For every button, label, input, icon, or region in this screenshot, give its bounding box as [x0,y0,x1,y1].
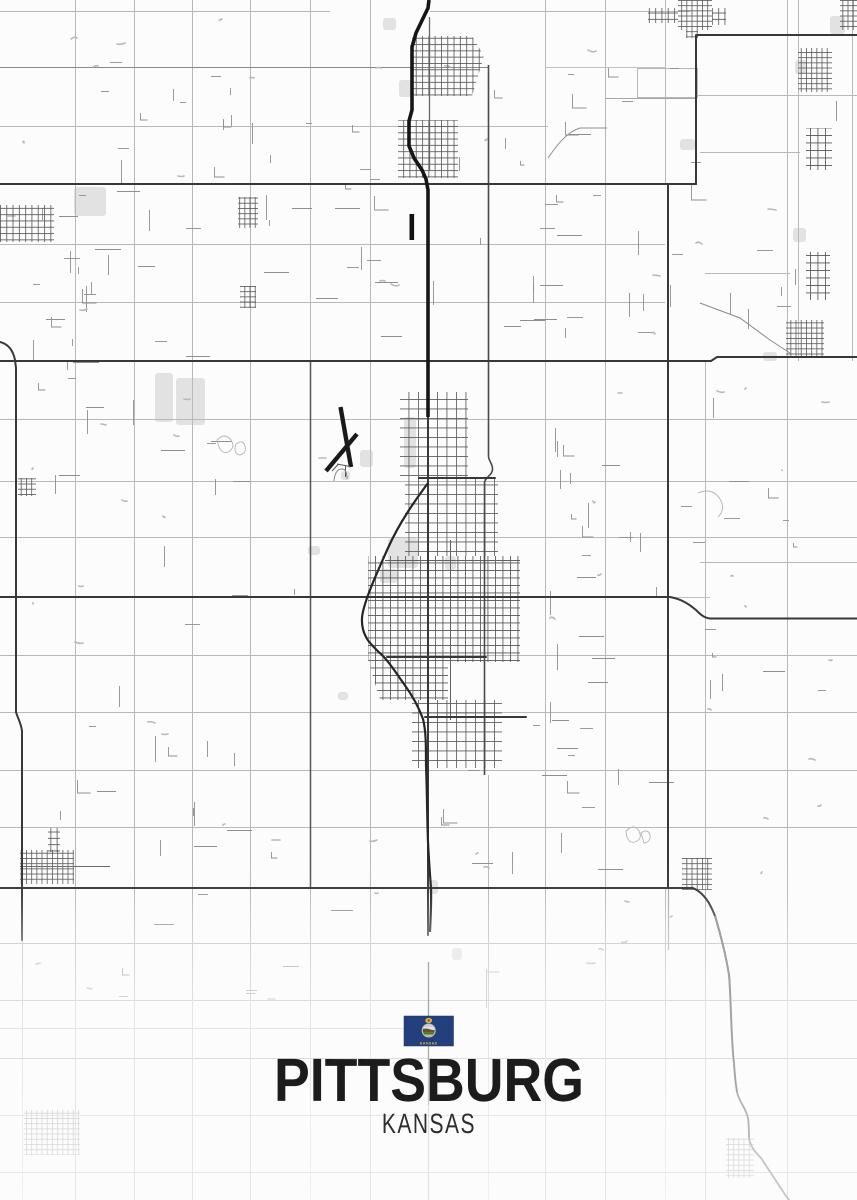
svg-text:KANSAS: KANSAS [420,1042,438,1046]
svg-text:KANSAS: KANSAS [382,1109,476,1140]
svg-text:PITTSBURG: PITTSBURG [274,1047,584,1115]
